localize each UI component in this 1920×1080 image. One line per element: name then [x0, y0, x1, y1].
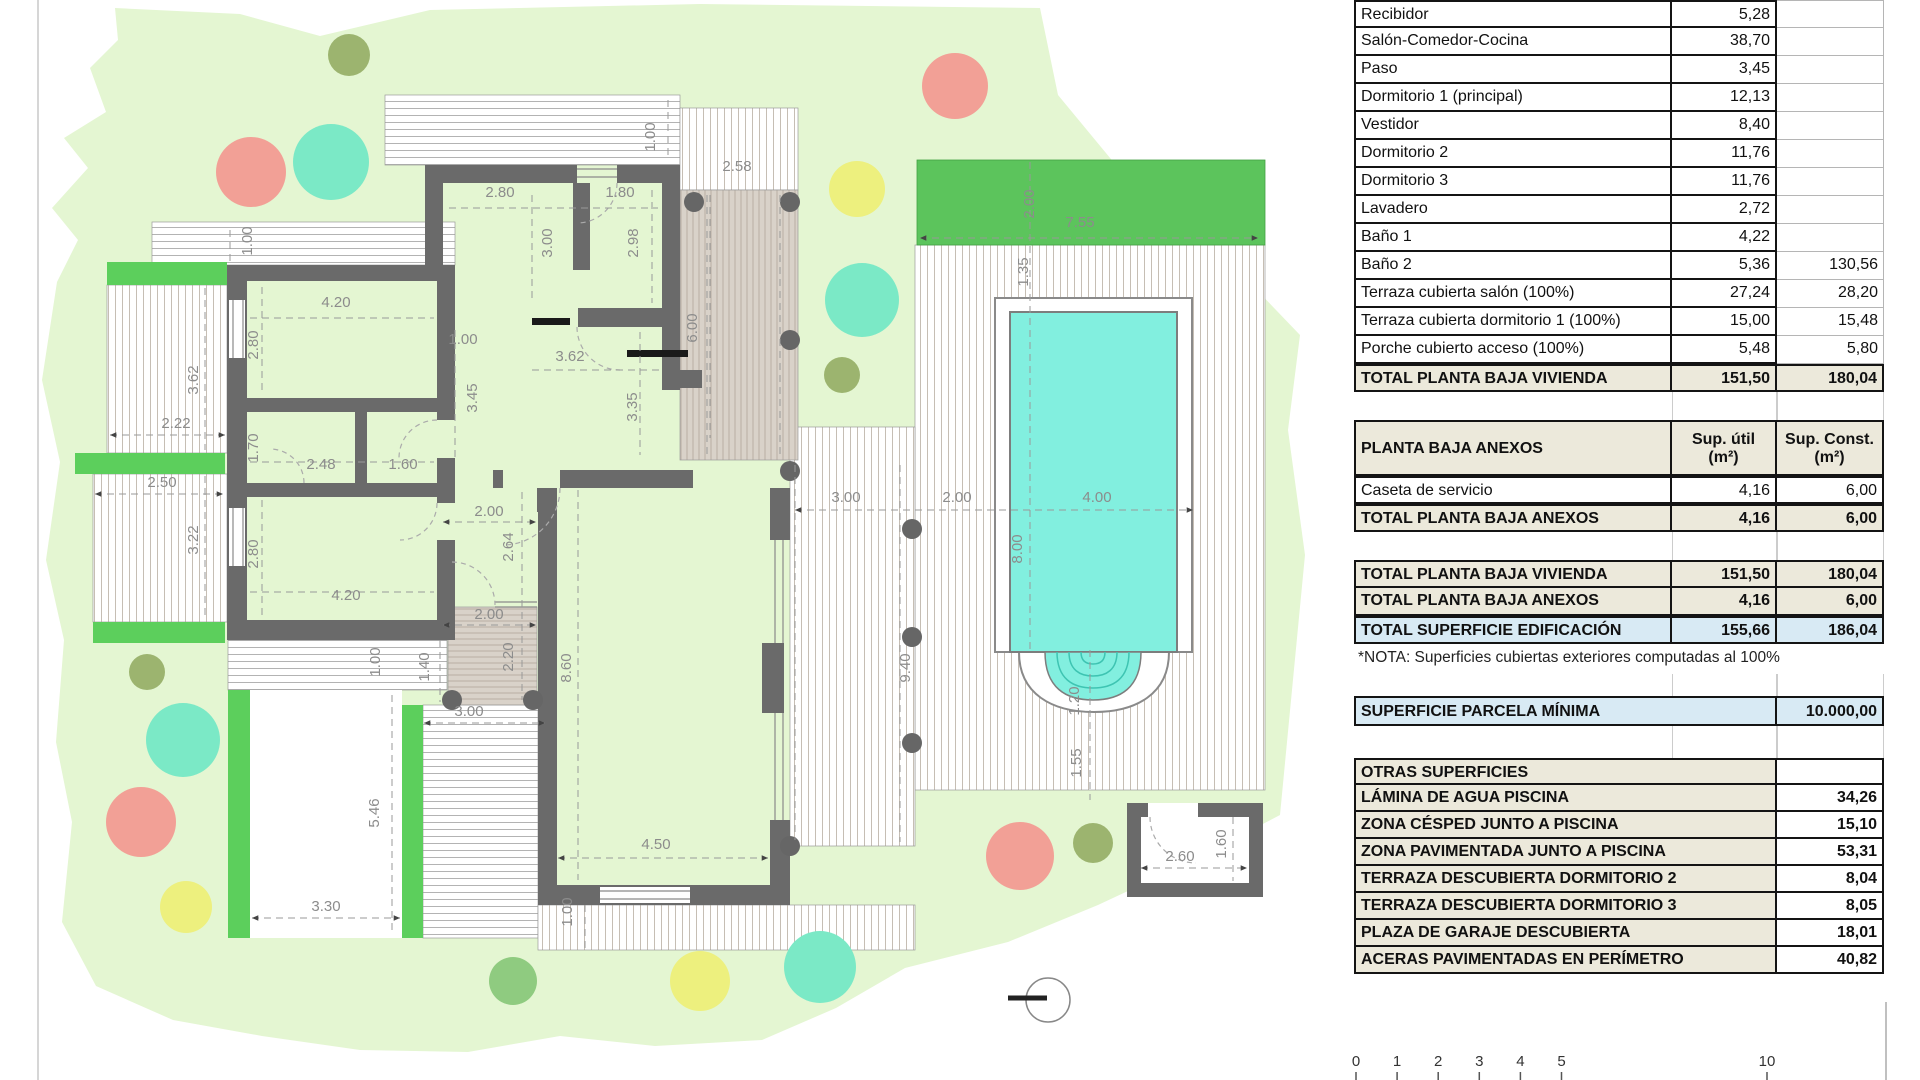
tree-icon	[922, 53, 988, 119]
scale-label: 2	[1434, 1053, 1442, 1070]
section-mark-icon	[1008, 978, 1070, 1022]
table-cell: Dormitorio 1 (principal)	[1354, 84, 1672, 112]
tree-icon	[986, 822, 1054, 890]
dimension-label: 2.48	[306, 456, 335, 473]
table-row: TOTAL PLANTA BAJA ANEXOS4,166,00	[1354, 588, 1888, 616]
tree-icon	[824, 357, 860, 393]
table-cell: Dormitorio 3	[1354, 168, 1672, 196]
table-cell: 3,45	[1672, 56, 1777, 84]
table-cell: 15,48	[1777, 308, 1884, 336]
dimension-label: 2.00	[474, 503, 503, 520]
dimension-label: 2.60	[1165, 848, 1194, 865]
table-row: Baño 14,22	[1354, 224, 1888, 252]
table-cell	[1777, 112, 1884, 140]
table-cell: 151,50	[1672, 560, 1777, 588]
table-cell: 5,48	[1672, 336, 1777, 364]
table-row: ZONA CÉSPED JUNTO A PISCINA15,10	[1354, 812, 1888, 839]
table-row: Porche cubierto acceso (100%)5,485,80	[1354, 336, 1888, 364]
table-row: Dormitorio 311,76	[1354, 168, 1888, 196]
table-row: Dormitorio 1 (principal)12,13	[1354, 84, 1888, 112]
tree-icon	[784, 931, 856, 1003]
table-header-cell: PLANTA BAJA ANEXOS	[1354, 420, 1672, 476]
table-row: ACERAS PAVIMENTADAS EN PERÍMETRO40,82	[1354, 947, 1888, 974]
table-cell: Salón-Comedor-Cocina	[1354, 28, 1672, 56]
dimension-label: 4.00	[1082, 489, 1111, 506]
porche-acceso	[680, 108, 798, 190]
table-cell: Vestidor	[1354, 112, 1672, 140]
table-cell: TOTAL PLANTA BAJA VIVIENDA	[1354, 560, 1672, 588]
table-cell: Caseta de servicio	[1354, 476, 1672, 504]
table-row: LÁMINA DE AGUA PISCINA34,26	[1354, 785, 1888, 812]
dimension-label: 3.62	[555, 348, 584, 365]
dimension-label: 8.60	[558, 653, 575, 682]
scale-label: 0	[1352, 1053, 1360, 1070]
tree-icon	[489, 957, 537, 1005]
zona-cesped-piscina	[917, 160, 1265, 245]
table-planta-baja-anexos: PLANTA BAJA ANEXOS Sup. útil(m²) Sup. Co…	[1354, 420, 1888, 476]
table-cell: 15,10	[1777, 812, 1884, 839]
table-gap	[1672, 532, 1884, 560]
dimension-label: 2.20	[500, 642, 517, 671]
table-cell: 151,50	[1672, 364, 1777, 392]
table-row: Baño 25,36130,56	[1354, 252, 1888, 280]
table-row-total-edificacion: TOTAL SUPERFICIE EDIFICACIÓN155,66186,04	[1354, 616, 1888, 644]
table-cell: 8,40	[1672, 112, 1777, 140]
dimension-label: 2.22	[161, 415, 190, 432]
table-otras-superficies: OTRAS SUPERFICIESLÁMINA DE AGUA PISCINA3…	[1354, 758, 1888, 974]
table-row: Vestidor8,40	[1354, 112, 1888, 140]
dimension-label: 2.80	[245, 539, 262, 568]
dimension-label: 2.64	[500, 532, 517, 561]
dimension-label: 1.35	[1015, 257, 1032, 286]
dimension-label: 1.00	[239, 226, 256, 255]
dimension-label: 1.00	[642, 122, 659, 151]
table-row: ZONA PAVIMENTADA JUNTO A PISCINA53,31	[1354, 839, 1888, 866]
scale-label: 5	[1557, 1053, 1565, 1070]
table-cell: TERRAZA DESCUBIERTA DORMITORIO 2	[1354, 866, 1777, 893]
table-cell: Baño 1	[1354, 224, 1672, 252]
table-cell: 5,36	[1672, 252, 1777, 280]
table-row: TERRAZA DESCUBIERTA DORMITORIO 38,05	[1354, 893, 1888, 920]
scale-bar: 01234510	[1352, 1053, 1776, 1080]
nota-text: *NOTA: Superficies cubiertas exteriores …	[1358, 644, 1878, 672]
table-row: TERRAZA DESCUBIERTA DORMITORIO 28,04	[1354, 866, 1888, 893]
caseta-servicio	[1127, 803, 1263, 897]
table-cell	[1777, 28, 1884, 56]
table-parcela-minima: SUPERFICIE PARCELA MÍNIMA 10.000,00	[1354, 696, 1888, 726]
dimension-label: 2.98	[625, 228, 642, 257]
table-cell: 5,28	[1672, 0, 1777, 28]
table-cell: 155,66	[1672, 616, 1777, 644]
table-cell: 8,04	[1777, 866, 1884, 893]
table-cell: 53,31	[1777, 839, 1884, 866]
table-cell: 11,76	[1672, 140, 1777, 168]
table-row-total-anexos: TOTAL PLANTA BAJA ANEXOS4,166,00	[1354, 504, 1888, 532]
tree-icon	[328, 34, 370, 76]
table-cell: Terraza cubierta salón (100%)	[1354, 280, 1672, 308]
table-cell: TOTAL SUPERFICIE EDIFICACIÓN	[1354, 616, 1672, 644]
table-row: PLAZA DE GARAJE DESCUBIERTA18,01	[1354, 920, 1888, 947]
table-row: Dormitorio 211,76	[1354, 140, 1888, 168]
dimension-label: 2.80	[485, 184, 514, 201]
table-cell: 4,16	[1672, 476, 1777, 504]
table-cell	[1777, 56, 1884, 84]
table-cell: Lavadero	[1354, 196, 1672, 224]
scale-label: 3	[1475, 1053, 1483, 1070]
dimension-label: 7.55	[1065, 214, 1094, 231]
tree-icon	[1073, 823, 1113, 863]
dimension-label: 9.40	[897, 653, 914, 682]
dimension-label: 2.80	[245, 330, 262, 359]
table-row: TOTAL PLANTA BAJA VIVIENDA151,50180,04	[1354, 364, 1888, 392]
table-row: OTRAS SUPERFICIES	[1354, 758, 1888, 785]
table-cell: ZONA PAVIMENTADA JUNTO A PISCINA	[1354, 839, 1777, 866]
table-cell: PLAZA DE GARAJE DESCUBIERTA	[1354, 920, 1777, 947]
table-cell: 6,00	[1777, 476, 1884, 504]
table-row: TOTAL PLANTA BAJA VIVIENDA151,50180,04	[1354, 560, 1888, 588]
table-header-cell: Sup. útil(m²)	[1672, 420, 1777, 476]
table-cell: 28,20	[1777, 280, 1884, 308]
dimension-label: 4.20	[321, 294, 350, 311]
table-row: Terraza cubierta dormitorio 1 (100%)15,0…	[1354, 308, 1888, 336]
table-planta-baja-vivienda: Recibidor5,28Salón-Comedor-Cocina38,70Pa…	[1354, 0, 1888, 364]
table-cell: 6,00	[1777, 504, 1884, 532]
tree-icon	[129, 654, 165, 690]
table-cell: SUPERFICIE PARCELA MÍNIMA	[1354, 696, 1777, 726]
dimension-label: 1.00	[448, 331, 477, 348]
dimension-label: 3.45	[464, 383, 481, 412]
table-cell: TOTAL PLANTA BAJA ANEXOS	[1354, 588, 1672, 616]
pool-water	[1010, 312, 1177, 652]
terraza-descubierta-dormitorio-3	[93, 474, 227, 622]
table-cell: Dormitorio 2	[1354, 140, 1672, 168]
dimension-label: 1.40	[416, 652, 433, 681]
table-cell: 10.000,00	[1777, 696, 1884, 726]
table-cell: 4,22	[1672, 224, 1777, 252]
dimension-label: 8.00	[1009, 534, 1026, 563]
tree-icon	[146, 703, 220, 777]
table-row: Caseta de servicio4,166,00	[1354, 476, 1888, 504]
tree-icon	[825, 263, 899, 337]
dimension-label: 1.60	[1213, 829, 1230, 858]
table-cell: LÁMINA DE AGUA PISCINA	[1354, 785, 1777, 812]
table-cell: 15,00	[1672, 308, 1777, 336]
table-cell: ZONA CÉSPED JUNTO A PISCINA	[1354, 812, 1777, 839]
scale-label: 1	[1393, 1053, 1401, 1070]
table-cell: 4,16	[1672, 504, 1777, 532]
table-gap	[1672, 392, 1884, 420]
table-cell: 5,80	[1777, 336, 1884, 364]
dimension-label: 3.35	[624, 392, 641, 421]
tree-icon	[670, 951, 730, 1011]
tree-icon	[829, 161, 885, 217]
table-row: Paso3,45	[1354, 56, 1888, 84]
table-gap	[1672, 674, 1884, 696]
table-cell	[1777, 168, 1884, 196]
dimension-label: 2.50	[147, 474, 176, 491]
dimension-label: 3.00	[831, 489, 860, 506]
dimension-label: 5.46	[366, 798, 383, 827]
table-cell: 2,72	[1672, 196, 1777, 224]
table-cell: TOTAL PLANTA BAJA VIVIENDA	[1354, 364, 1672, 392]
table-cell: 18,01	[1777, 920, 1884, 947]
table-row: Terraza cubierta salón (100%)27,2428,20	[1354, 280, 1888, 308]
table-cell: 8,05	[1777, 893, 1884, 920]
dimension-label: 1.80	[605, 184, 634, 201]
dimension-label: 3.00	[539, 228, 556, 257]
table-row-total-vivienda: TOTAL PLANTA BAJA VIVIENDA151,50180,04	[1354, 364, 1888, 392]
table-row: TOTAL SUPERFICIE EDIFICACIÓN155,66186,04	[1354, 616, 1888, 644]
table-cell: ACERAS PAVIMENTADAS EN PERÍMETRO	[1354, 947, 1777, 974]
dimension-label: 1.70	[245, 433, 262, 462]
dimension-label: 3.00	[454, 703, 483, 720]
table-cell: Baño 2	[1354, 252, 1672, 280]
table-cell: 180,04	[1777, 364, 1884, 392]
table-header-cell: Sup. Const.(m²)	[1777, 420, 1884, 476]
table-cell: 40,82	[1777, 947, 1884, 974]
tree-icon	[160, 881, 212, 933]
tree-icon	[293, 124, 369, 200]
dimension-label: 6.00	[684, 313, 701, 342]
table-cell	[1777, 84, 1884, 112]
table-anexos-rows: Caseta de servicio4,166,00	[1354, 476, 1888, 504]
scale-label: 4	[1516, 1053, 1524, 1070]
table-cell: 12,13	[1672, 84, 1777, 112]
scale-label: 10	[1759, 1053, 1776, 1070]
table-cell: TERRAZA DESCUBIERTA DORMITORIO 3	[1354, 893, 1777, 920]
dimension-label: 3.30	[311, 898, 340, 915]
table-cell: OTRAS SUPERFICIES	[1354, 758, 1777, 785]
table-cell: 6,00	[1777, 588, 1884, 616]
table-cell: Porche cubierto acceso (100%)	[1354, 336, 1672, 364]
dimension-label: 1.00	[367, 647, 384, 676]
dimension-label: 1.00	[559, 897, 576, 926]
table-cell: 180,04	[1777, 560, 1884, 588]
table-cell	[1777, 224, 1884, 252]
table-cell	[1777, 140, 1884, 168]
table-row: Recibidor5,28	[1354, 0, 1888, 28]
table-row: Lavadero2,72	[1354, 196, 1888, 224]
tree-icon	[106, 787, 176, 857]
tree-icon	[216, 137, 286, 207]
table-cell	[1777, 758, 1884, 785]
table-cell: Terraza cubierta dormitorio 1 (100%)	[1354, 308, 1672, 336]
table-cell: Recibidor	[1354, 0, 1672, 28]
table-resumen: TOTAL PLANTA BAJA VIVIENDA151,50180,04TO…	[1354, 560, 1888, 616]
table-cell: 38,70	[1672, 28, 1777, 56]
dimension-label: 3.22	[185, 525, 202, 554]
table-cell: 130,56	[1777, 252, 1884, 280]
site-plan-sheet: 1.002.801.802.583.002.986.001.004.202.80…	[0, 0, 1920, 1080]
table-cell	[1777, 0, 1884, 28]
dimension-label: 2.00	[1021, 189, 1038, 218]
table-cell: 4,16	[1672, 588, 1777, 616]
table-cell: 11,76	[1672, 168, 1777, 196]
table-cell	[1777, 196, 1884, 224]
table-row: Salón-Comedor-Cocina38,70	[1354, 28, 1888, 56]
dimension-label: 4.20	[331, 587, 360, 604]
table-cell: 186,04	[1777, 616, 1884, 644]
table-cell: Paso	[1354, 56, 1672, 84]
dimension-label: 2.00	[474, 606, 503, 623]
dimension-label: 1.20	[1066, 686, 1083, 715]
dimension-label: 1.55	[1068, 748, 1085, 777]
table-row: TOTAL PLANTA BAJA ANEXOS4,166,00	[1354, 504, 1888, 532]
table-cell: 34,26	[1777, 785, 1884, 812]
dimension-label: 3.62	[185, 365, 202, 394]
table-gap	[1672, 726, 1884, 758]
table-cell: 27,24	[1672, 280, 1777, 308]
dimension-label: 1.60	[388, 456, 417, 473]
dimension-label: 4.50	[641, 836, 670, 853]
table-cell: TOTAL PLANTA BAJA ANEXOS	[1354, 504, 1672, 532]
dimension-label: 2.00	[942, 489, 971, 506]
dimension-label: 2.58	[722, 158, 751, 175]
